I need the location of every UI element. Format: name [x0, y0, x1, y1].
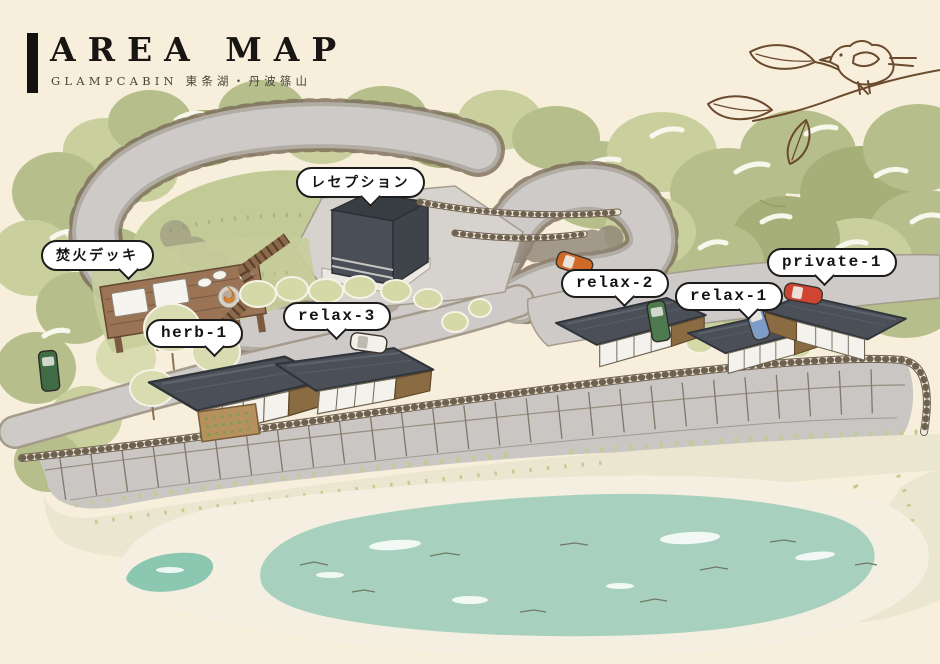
label-herb-1[interactable]: herb-1 [146, 319, 243, 348]
label-relax-1-text: relax-1 [690, 287, 768, 305]
area-map-page: AREA MAP GLAMPCABIN 東条湖・丹波篠山 レセプション 焚火デッ… [0, 0, 940, 664]
header: AREA MAP GLAMPCABIN 東条湖・丹波篠山 [27, 30, 348, 89]
label-relax-2-text: relax-2 [576, 274, 654, 292]
label-private-1-text: private-1 [782, 253, 882, 271]
page-subtitle: GLAMPCABIN 東条湖・丹波篠山 [51, 73, 348, 89]
label-relax-2[interactable]: relax-2 [561, 269, 669, 298]
label-bonfire-deck[interactable]: 焚火デッキ [41, 240, 154, 271]
page-title: AREA MAP [50, 30, 348, 70]
title-accent-bar [27, 33, 38, 93]
label-relax-1[interactable]: relax-1 [675, 282, 783, 311]
label-reception-text: レセプション [311, 175, 410, 191]
label-relax-3[interactable]: relax-3 [283, 302, 391, 331]
label-reception[interactable]: レセプション [296, 167, 425, 198]
label-private-1[interactable]: private-1 [767, 248, 897, 277]
area-map-illustration [0, 0, 940, 664]
van-green-herb [38, 350, 60, 392]
